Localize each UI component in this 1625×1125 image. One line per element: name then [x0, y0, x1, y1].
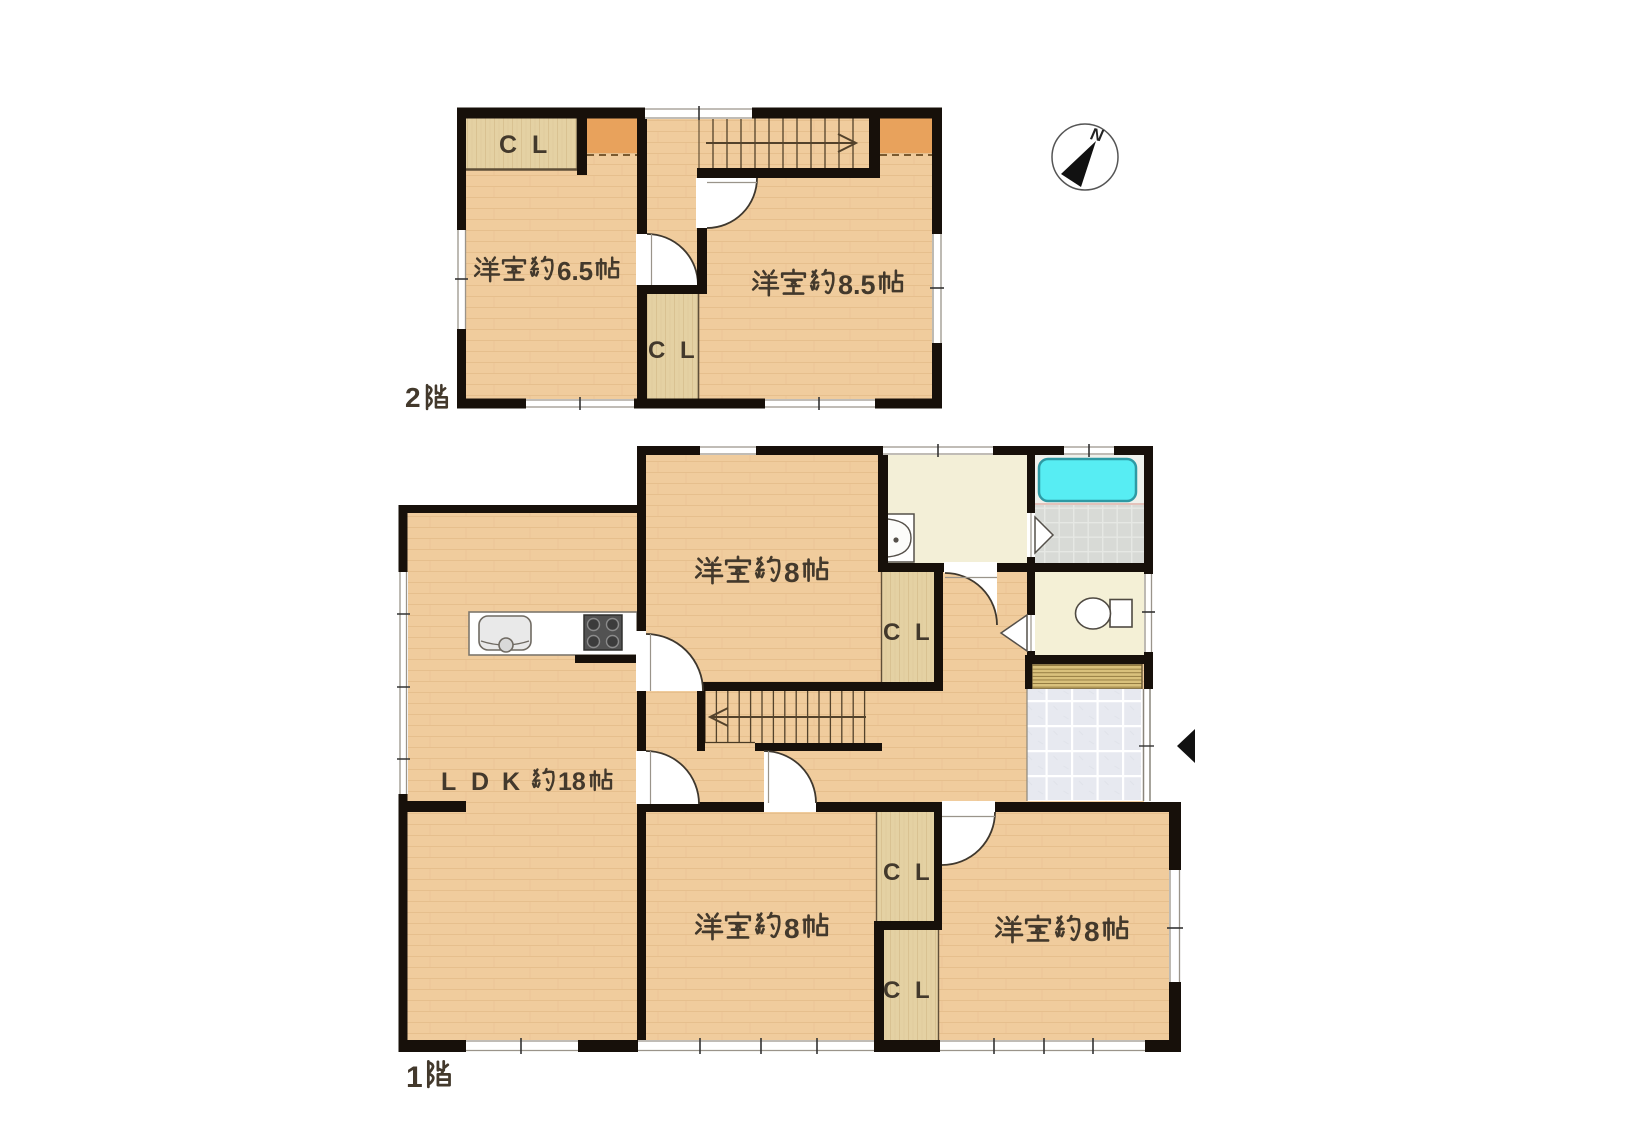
svg-text:C L: C L	[648, 337, 699, 364]
svg-text:18: 18	[558, 768, 586, 796]
svg-text:8: 8	[1084, 916, 1100, 947]
svg-text:C L: C L	[883, 977, 934, 1004]
svg-text:C L: C L	[883, 859, 934, 886]
svg-text:K: K	[502, 768, 520, 796]
svg-text:8: 8	[784, 557, 800, 588]
svg-text:8.5: 8.5	[838, 270, 876, 300]
svg-text:1: 1	[406, 1061, 423, 1094]
svg-text:6.5: 6.5	[557, 256, 593, 286]
svg-text:D: D	[471, 768, 489, 796]
svg-text:L: L	[441, 768, 456, 796]
svg-text:2: 2	[405, 382, 421, 413]
svg-text:C L: C L	[883, 619, 934, 646]
svg-text:C L: C L	[499, 131, 551, 159]
svg-text:8: 8	[784, 913, 800, 944]
